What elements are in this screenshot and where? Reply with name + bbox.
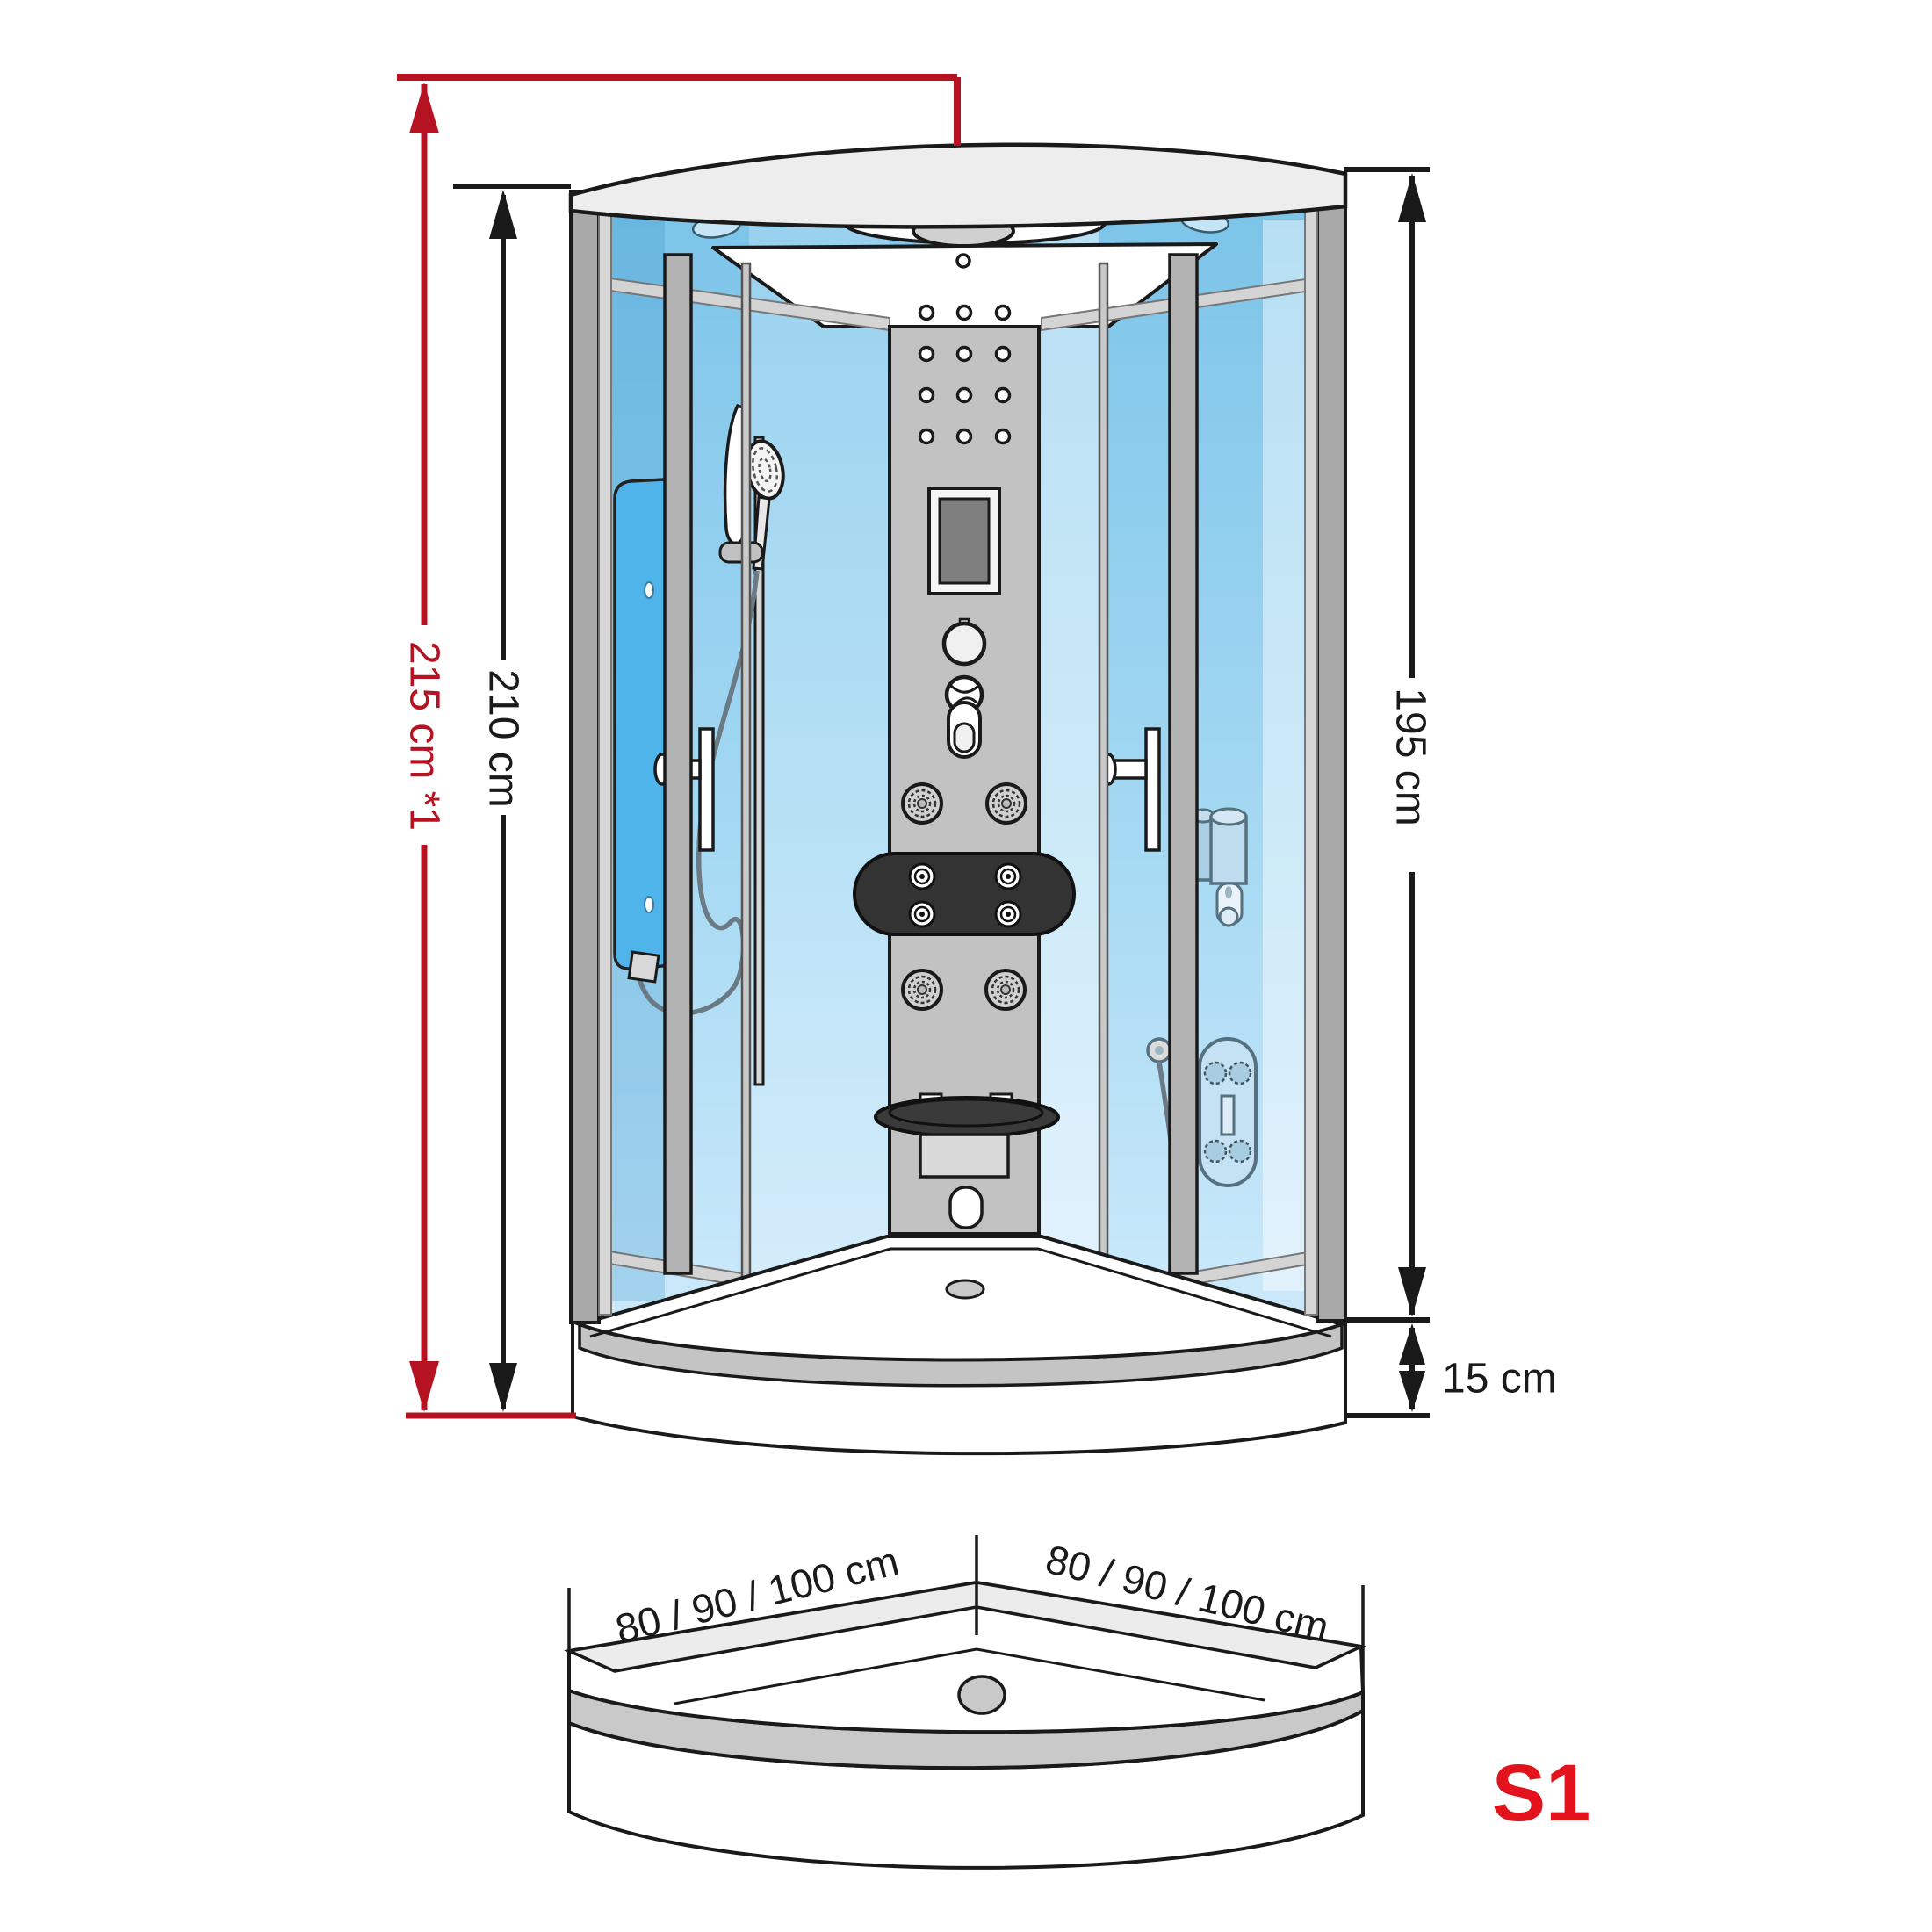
control-display xyxy=(929,488,999,594)
glass-bay-door-left xyxy=(749,220,890,1295)
mixer-lever xyxy=(947,677,982,757)
label-glass-height: 195 cm xyxy=(1388,688,1434,825)
dimension-210: 210 cm xyxy=(453,186,571,1412)
roof-band xyxy=(571,145,1345,227)
ceiling-nozzle xyxy=(957,255,970,267)
label-tray-height: 15 cm xyxy=(1442,1356,1557,1402)
seat-pedestal xyxy=(920,1135,1008,1177)
foot-jet xyxy=(950,1187,982,1228)
glass-bay-pale-left xyxy=(1041,220,1099,1291)
frame-post-outer-right xyxy=(1305,174,1345,1321)
shower-cabin-dimension-diagram: 215 cm *1 210 cm 195 cm 15 cm 80 xyxy=(0,0,1932,1932)
hose-wall-connector xyxy=(629,952,659,982)
door-stile-left xyxy=(742,263,750,1278)
model-label: S1 xyxy=(1492,1748,1591,1838)
dimension-195: 195 cm xyxy=(1344,169,1434,1316)
shower-cabin xyxy=(571,145,1345,1453)
dimension-15: 15 cm xyxy=(1345,1320,1557,1416)
tray-footprint-diagram: 80 / 90 / 100 cm 80 / 90 / 100 cm xyxy=(569,1535,1363,1868)
frame-post-inner-right xyxy=(1170,255,1197,1273)
label-cabin-height: 210 cm xyxy=(480,669,527,807)
headrest xyxy=(854,854,1074,934)
tray-drain xyxy=(947,1280,984,1298)
label-overall-height: 215 cm *1 xyxy=(401,641,448,831)
frame-post-outer-left xyxy=(571,191,611,1323)
frame-post-inner-left xyxy=(665,255,691,1273)
door-stile-right xyxy=(1099,263,1107,1278)
footprint-drain xyxy=(959,1676,1005,1713)
massage-jet-panel xyxy=(1200,1039,1256,1186)
